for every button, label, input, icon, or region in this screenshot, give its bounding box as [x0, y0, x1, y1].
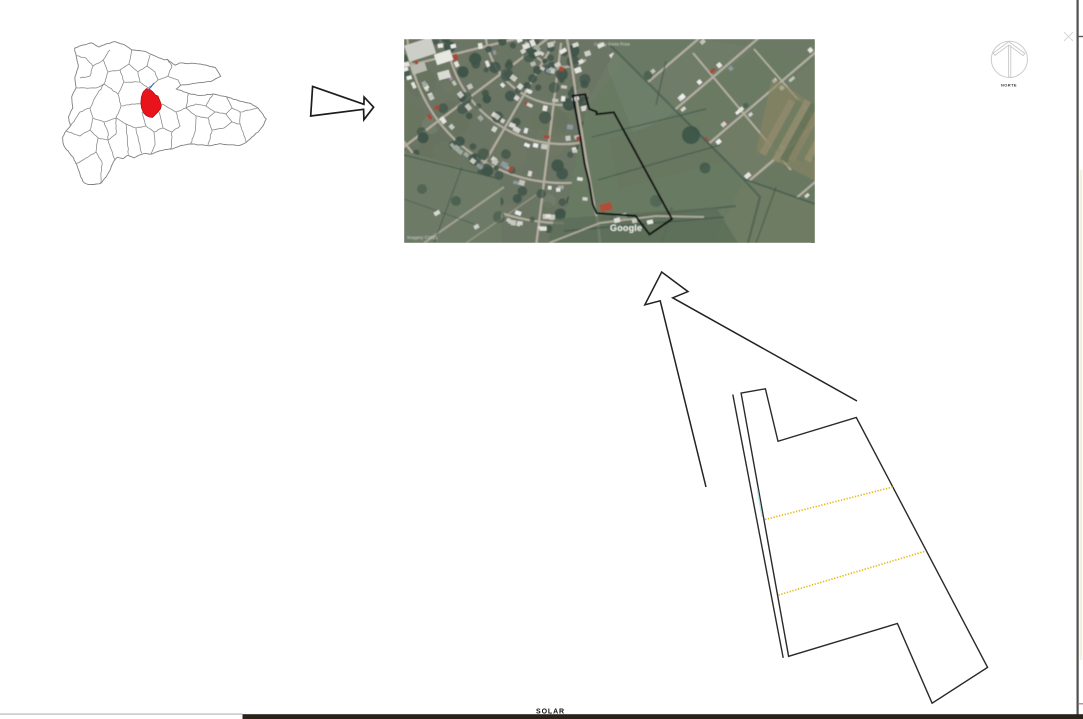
- svg-text:Imagery ©2021: Imagery ©2021: [407, 234, 438, 240]
- svg-text:Calle y Santa Rosa: Calle y Santa Rosa: [594, 42, 631, 47]
- svg-text:Google: Google: [610, 223, 642, 233]
- svg-text:NORTE: NORTE: [1001, 83, 1017, 88]
- svg-text:SOLAR: SOLAR: [536, 709, 565, 716]
